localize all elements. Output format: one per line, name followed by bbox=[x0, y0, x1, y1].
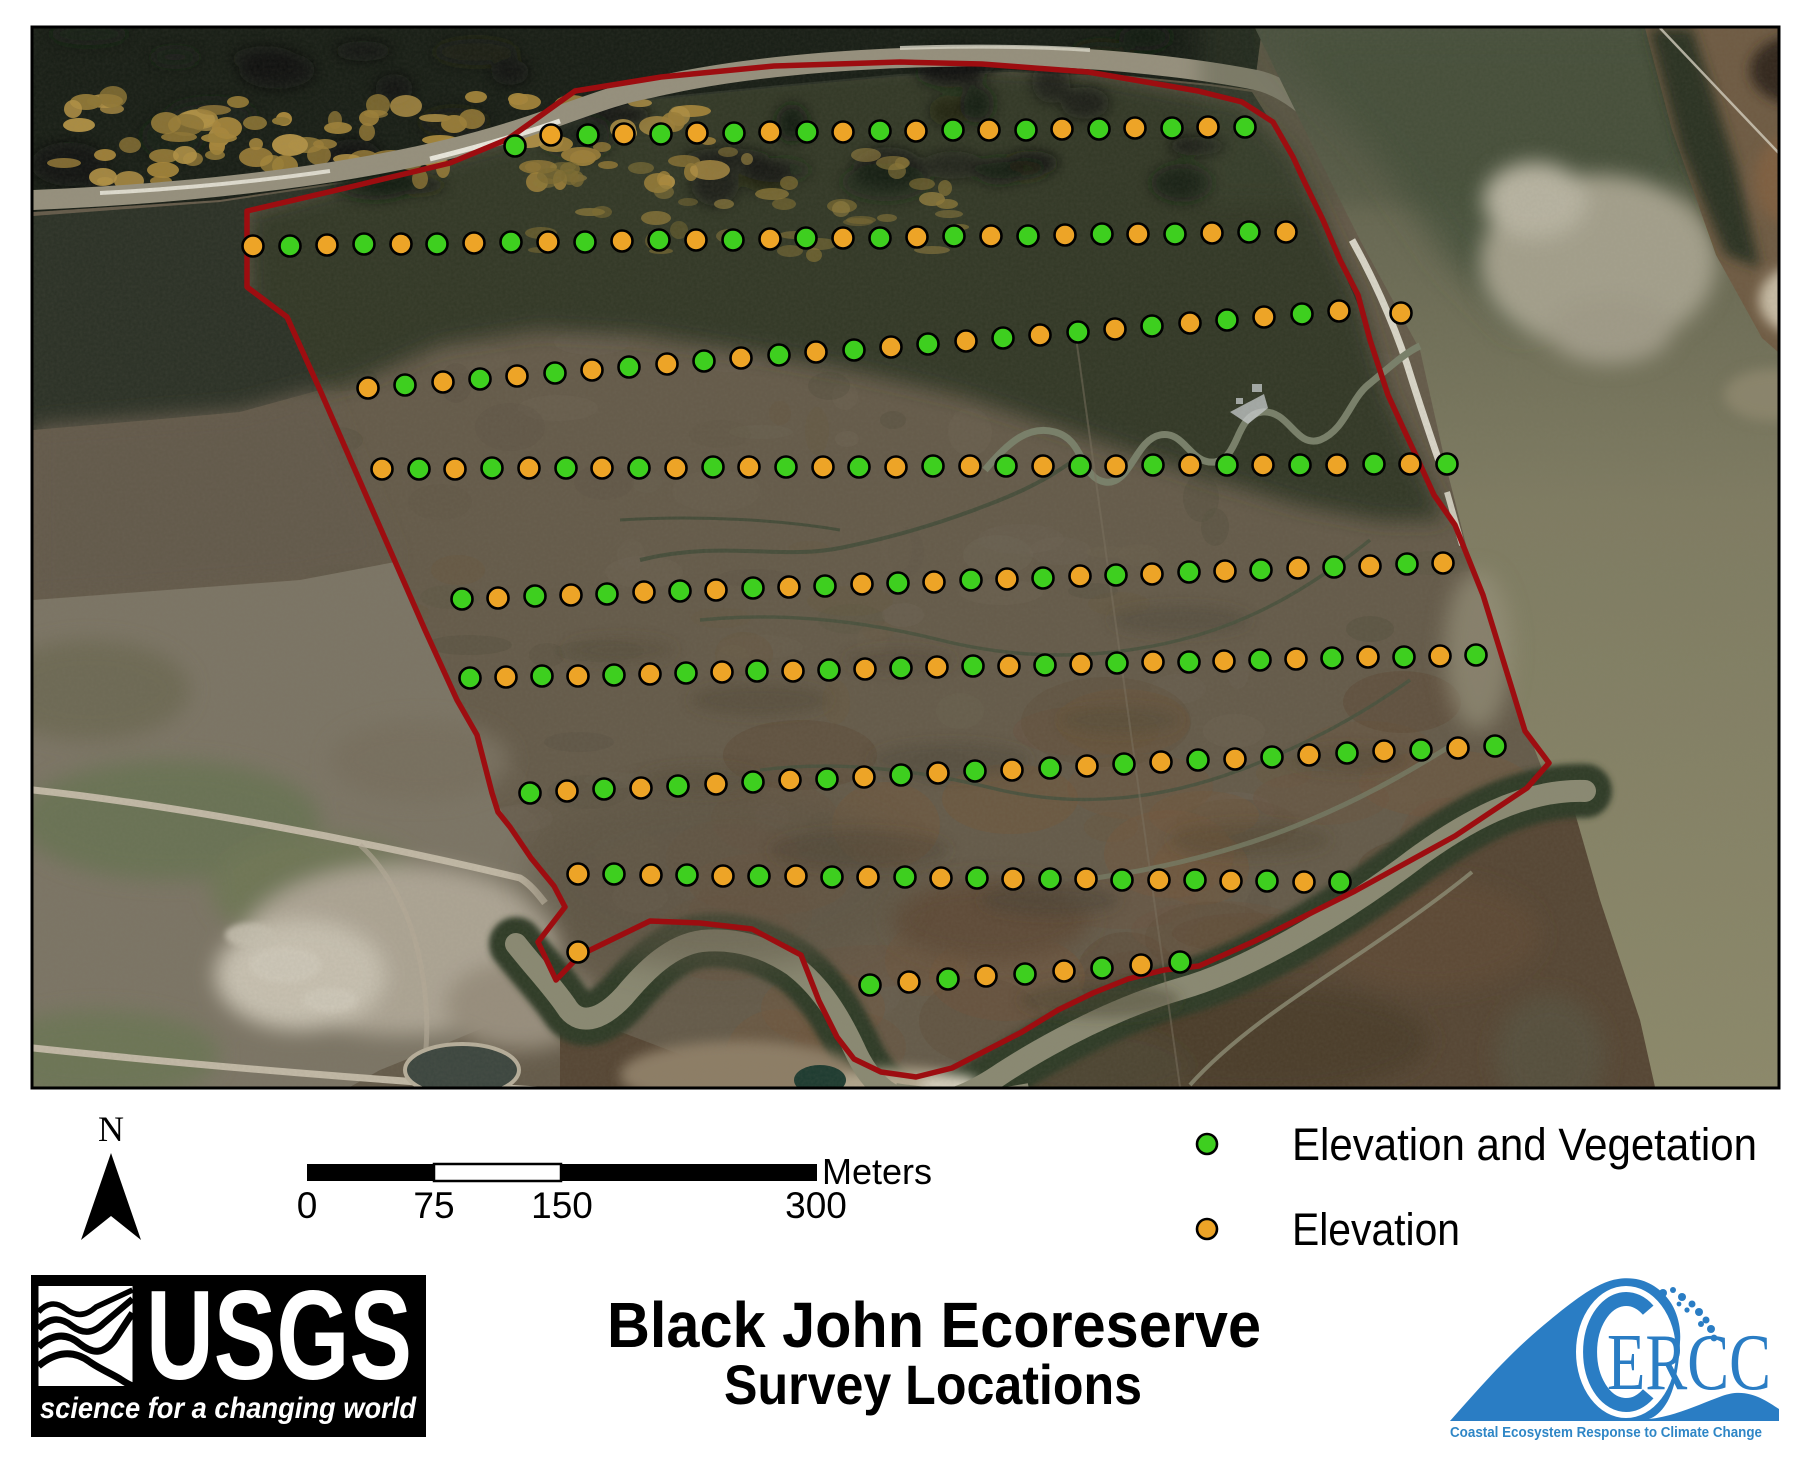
svg-text:USGS: USGS bbox=[146, 1264, 412, 1406]
svg-text:Meters: Meters bbox=[822, 1151, 932, 1192]
svg-text:N: N bbox=[98, 1109, 124, 1149]
svg-text:science for a changing world: science for a changing world bbox=[40, 1392, 417, 1425]
svg-text:Elevation and Vegetation: Elevation and Vegetation bbox=[1292, 1119, 1757, 1170]
svg-text:75: 75 bbox=[413, 1185, 454, 1226]
svg-text:Elevation: Elevation bbox=[1292, 1204, 1460, 1255]
svg-text:Coastal Ecosystem Response to: Coastal Ecosystem Response to Climate Ch… bbox=[1450, 1425, 1762, 1441]
svg-text:Survey Locations: Survey Locations bbox=[724, 1353, 1142, 1416]
svg-text:0: 0 bbox=[297, 1185, 318, 1226]
svg-text:150: 150 bbox=[531, 1185, 593, 1226]
svg-text:Black John Ecoreserve: Black John Ecoreserve bbox=[607, 1289, 1261, 1361]
svg-text:ERCC: ERCC bbox=[1607, 1319, 1771, 1407]
